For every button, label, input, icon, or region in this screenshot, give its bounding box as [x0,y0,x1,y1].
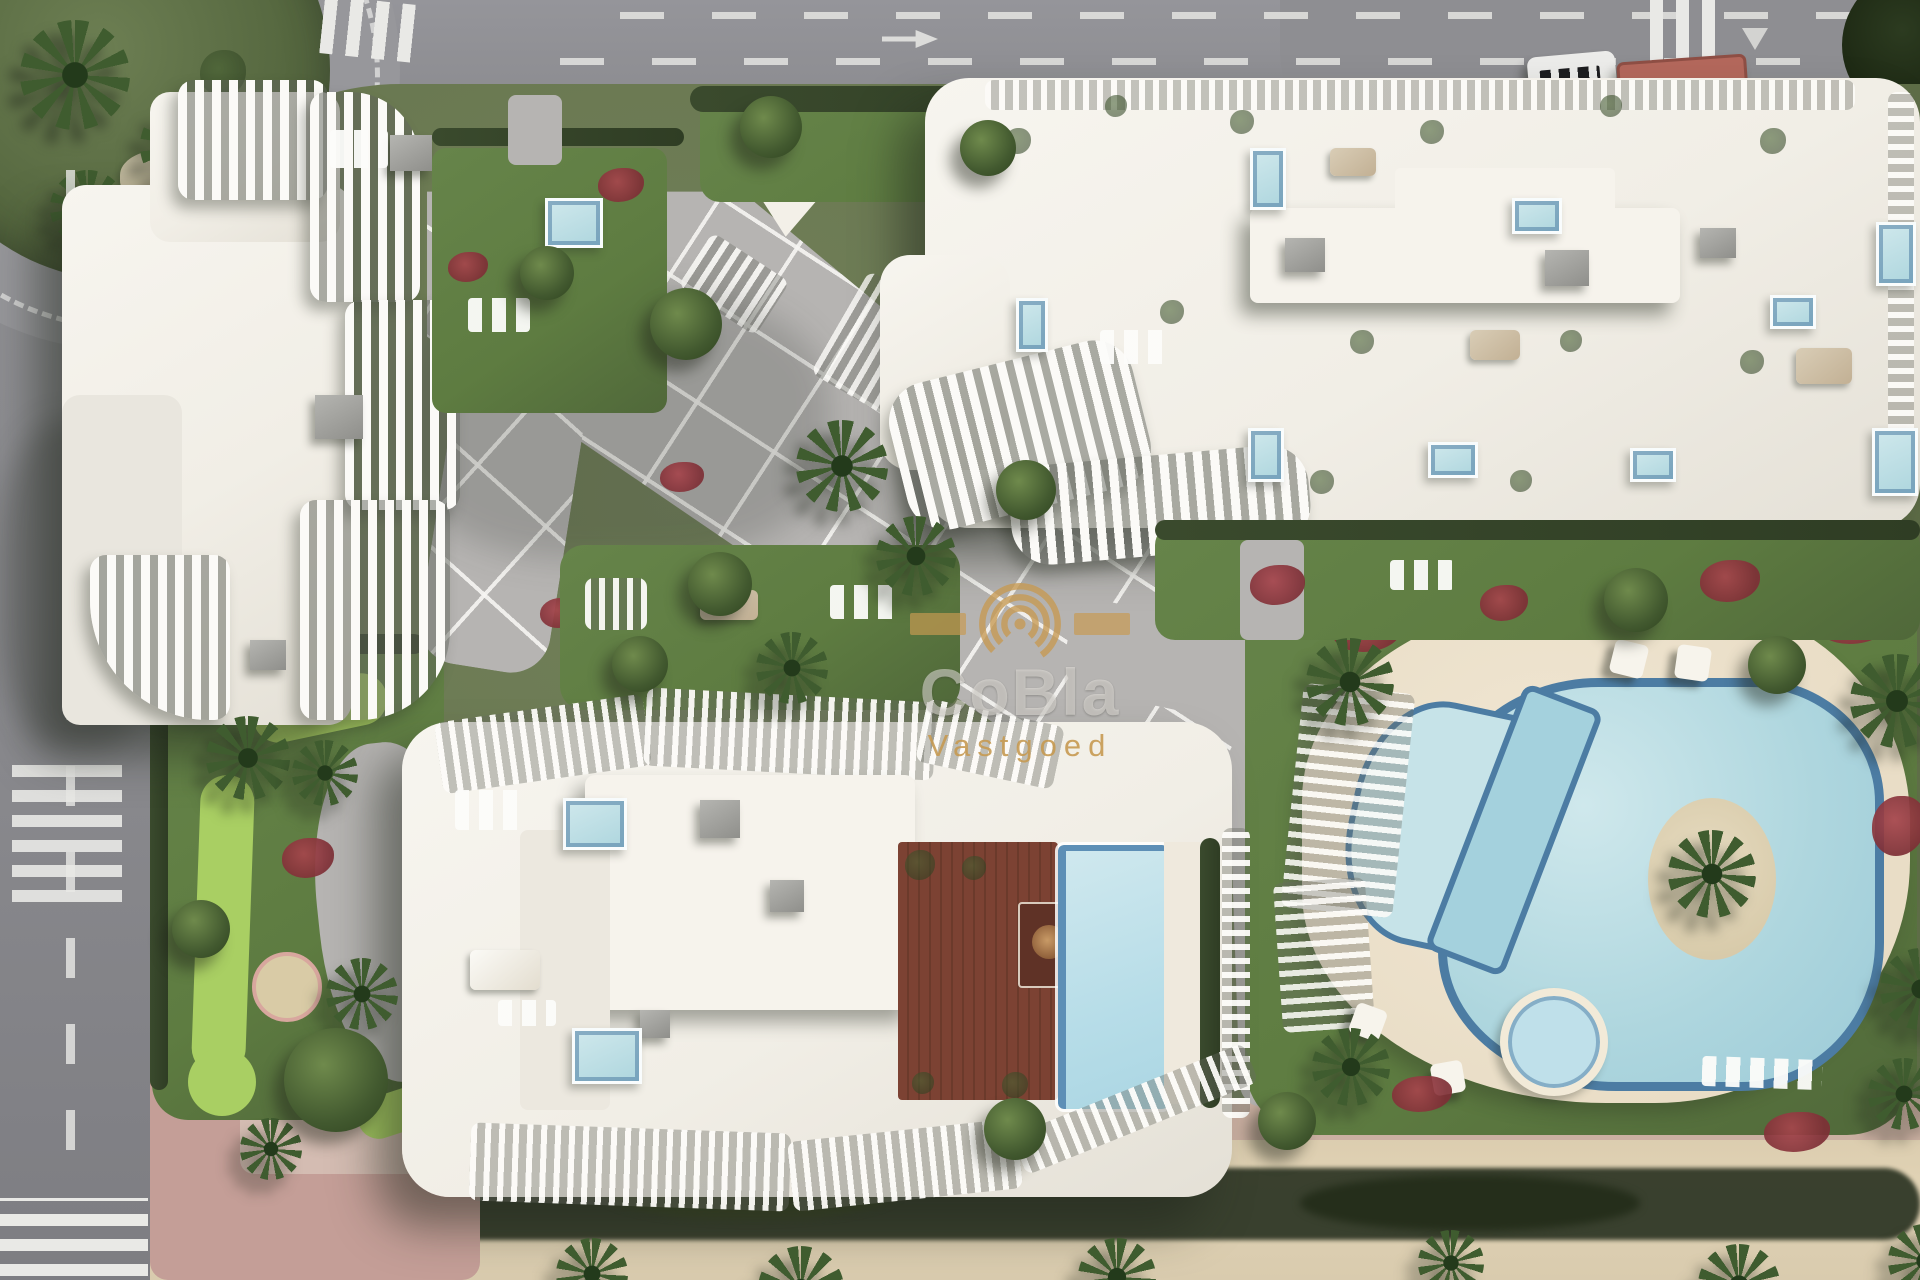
central-lawn-pergola [585,578,647,630]
pool-loungers-row [1702,1056,1823,1090]
tree [740,96,802,158]
beach-umbrella [1674,644,1712,682]
crosswalk-left-mid [12,752,122,902]
tree [612,636,668,692]
palm-tree [326,958,398,1030]
watermark-sub-text: Vastgoed [928,728,1113,764]
building-b-stair-bulkhead [1700,228,1736,258]
tree [284,1028,388,1132]
palm-tree [796,420,888,512]
mini-golf-hedge-west [150,700,168,1090]
building-b-plunge-pool [1630,448,1676,482]
lagoon-flower-bed [1872,796,1920,856]
building-a-garden-pool [545,198,603,248]
building-c-stair-bulkhead [700,800,740,838]
watermark-bar-right [1074,613,1130,635]
sand-trap [252,952,322,1022]
building-a-louver-band [300,500,450,720]
tree [984,1098,1046,1160]
tree [1258,1092,1316,1150]
jacuzzi-pool [1500,988,1608,1096]
tree [1604,568,1668,632]
building-a-stair-bulkhead [315,395,363,439]
building-b-plunge-pool [1428,442,1478,478]
promenade-hedge-blob [1300,1175,1640,1231]
building-c-terrace-loungers [455,790,521,830]
palm-tree [240,1118,302,1180]
building-c-round-chairs [498,1000,556,1026]
tree [688,552,752,616]
entry-path-north [508,95,562,165]
tree [1748,636,1806,694]
aerial-render-residential-complex: CoBla Vastgoed [0,0,1920,1280]
building-a-roof-furniture [330,130,388,168]
building-b-plunge-pool [1872,428,1918,496]
building-b-plunge-pool [1770,295,1816,329]
building-b-plunge-pool [1016,298,1048,352]
crosswalk-bottom-left [0,1198,148,1276]
building-c-south-louvers [469,1122,792,1211]
building-b-south-hedge [1155,520,1920,540]
building-a-louver-band [310,92,420,302]
watermark-brand-text: CoBla [920,654,1121,730]
watermark: CoBla Vastgoed [870,578,1170,764]
building-c-terrace-pool [563,798,627,850]
tree [650,288,722,360]
tree [996,460,1056,520]
tree [960,120,1016,176]
building-b-roof-furniture [1796,348,1852,384]
palm-tree [1306,638,1394,726]
building-b-roof-furniture [1470,330,1520,360]
tree [520,246,574,300]
palm-tree [756,632,828,704]
building-a-roof-pergola [178,80,328,200]
building-a-garden-loungers [468,298,530,332]
building-c-main-pool [1058,845,1168,1109]
building-b-roof-furniture [1330,148,1376,176]
tree [172,900,230,958]
building-c-stair-bulkhead [770,880,804,912]
building-b-stair-bulkhead [1285,238,1325,272]
roundabout-palm [20,20,130,130]
building-b-stair-bulkhead [1545,250,1589,286]
palm-tree [1312,1028,1390,1106]
building-b-plunge-pool [1250,148,1286,210]
road-top-edge-dashes [620,12,1920,19]
building-c-raised-roof [585,775,915,1010]
building-a-stair-bulkhead [250,640,286,670]
building-b-plunge-pool [1248,428,1284,482]
palm-tree [292,740,358,806]
building-b-garden-loungers [1390,560,1454,590]
building-b-core-roof [1395,168,1615,226]
building-c-stair-bulkhead [640,1010,670,1038]
building-b-plunge-pool [1512,198,1562,234]
building-c-terrace-pool [572,1028,642,1084]
palm-tree [206,716,290,800]
building-a-stair-bulkhead [390,135,432,171]
crosswalk-top-left [319,0,417,63]
building-b-roof-loungers [1100,330,1166,364]
building-c-dining-table [470,950,540,990]
island-palm [1668,830,1756,918]
watermark-bar-left [910,613,966,635]
putting-green-bulb [188,1048,256,1116]
building-b-plunge-pool [1876,222,1916,286]
